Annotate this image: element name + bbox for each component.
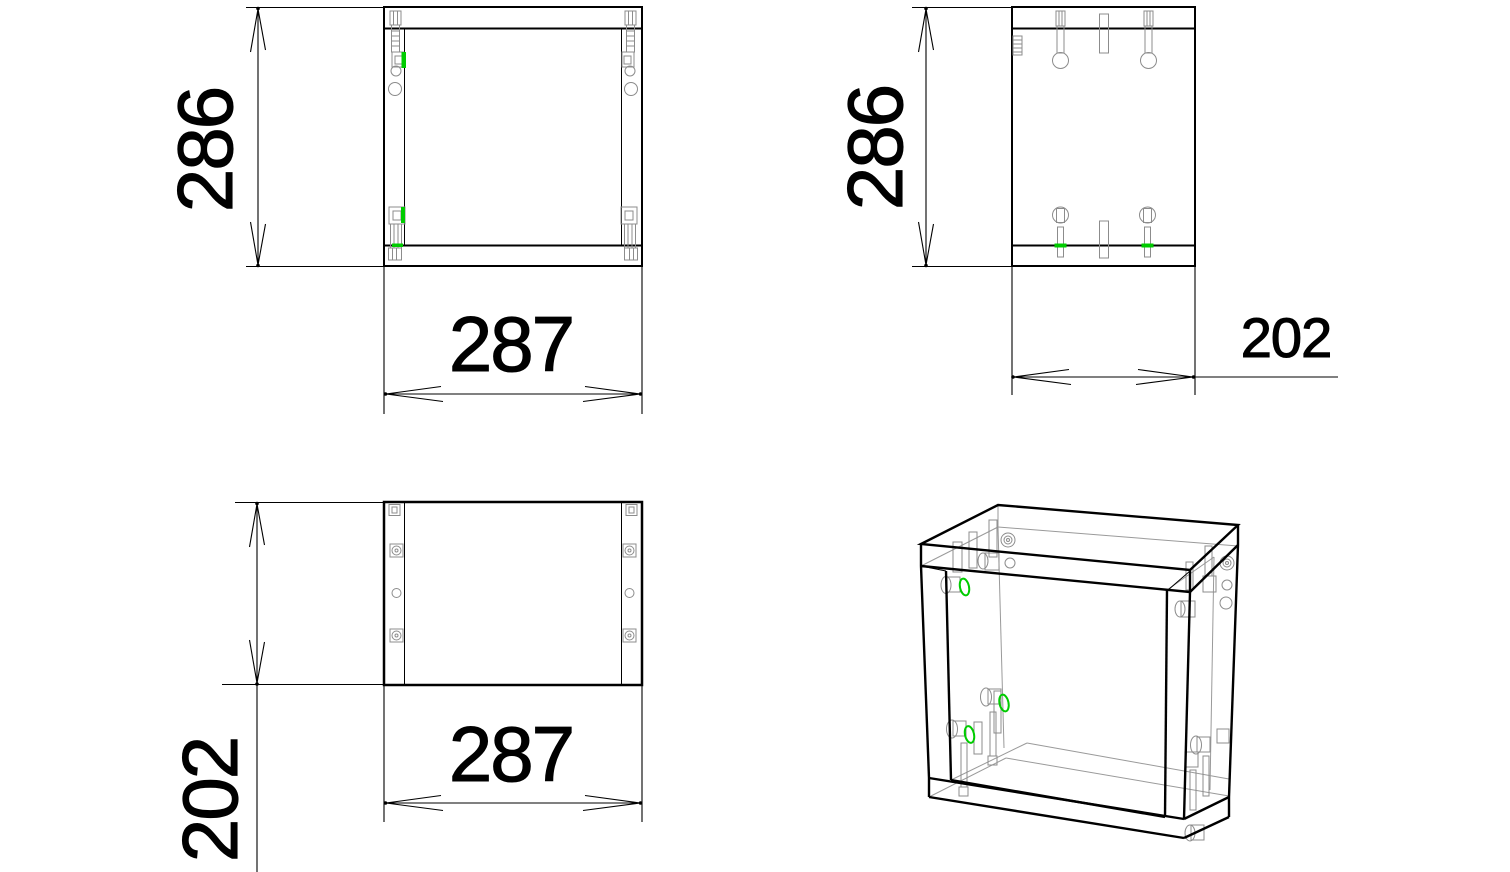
- highlight-cam-marker: [402, 52, 407, 68]
- highlight-cam-marker: [958, 578, 970, 596]
- front-hardware-bottom-right: [621, 207, 638, 260]
- dim-front-height: 286: [161, 7, 384, 268]
- top-view-panels: [384, 502, 642, 685]
- dim-top-depth: 202: [166, 502, 384, 872]
- dim-front-width: 287: [384, 266, 643, 414]
- front-hardware-top-left: [389, 11, 407, 96]
- front-hardware-top-right: [622, 11, 638, 96]
- top-hardware-right: [623, 505, 637, 643]
- front-view-panels: [384, 7, 642, 266]
- dim-side-height: 286: [831, 7, 1012, 268]
- dim-top-depth-label: 202: [166, 738, 254, 862]
- top-view: 202 287: [166, 502, 642, 872]
- highlight-screw-marker: [392, 244, 403, 248]
- iso-hardware-left-top: [941, 520, 1015, 594]
- highlight-cam-marker: [401, 207, 405, 223]
- side-edge-screw-icon: [1013, 36, 1022, 55]
- dim-side-height-label: 286: [831, 86, 919, 210]
- front-hardware-bottom-left: [389, 207, 406, 260]
- highlight-cam-marker: [998, 694, 1010, 712]
- dim-front-width-label: 287: [449, 300, 573, 388]
- side-hardware-bottom: [1053, 207, 1156, 258]
- side-hardware-top: [1053, 11, 1157, 69]
- dowel-icon: [1100, 221, 1109, 258]
- isometric-view: [921, 505, 1238, 841]
- top-hardware-left: [389, 505, 403, 643]
- iso-highlights: [958, 578, 1010, 744]
- technical-drawing-canvas: 286 287: [0, 0, 1510, 872]
- side-view-panels: [1012, 7, 1195, 266]
- dim-top-width-label: 287: [449, 710, 573, 798]
- dim-top-width: 287: [384, 686, 643, 822]
- side-view: 286 202: [831, 7, 1338, 395]
- dim-side-depth-label: 202: [1241, 306, 1331, 369]
- front-view: 286 287: [161, 7, 642, 414]
- iso-hardware-right-bottom: [1185, 729, 1229, 841]
- dowel-icon: [1100, 14, 1109, 53]
- dim-side-depth: 202: [1011, 266, 1338, 395]
- dim-front-height-label: 286: [161, 88, 249, 212]
